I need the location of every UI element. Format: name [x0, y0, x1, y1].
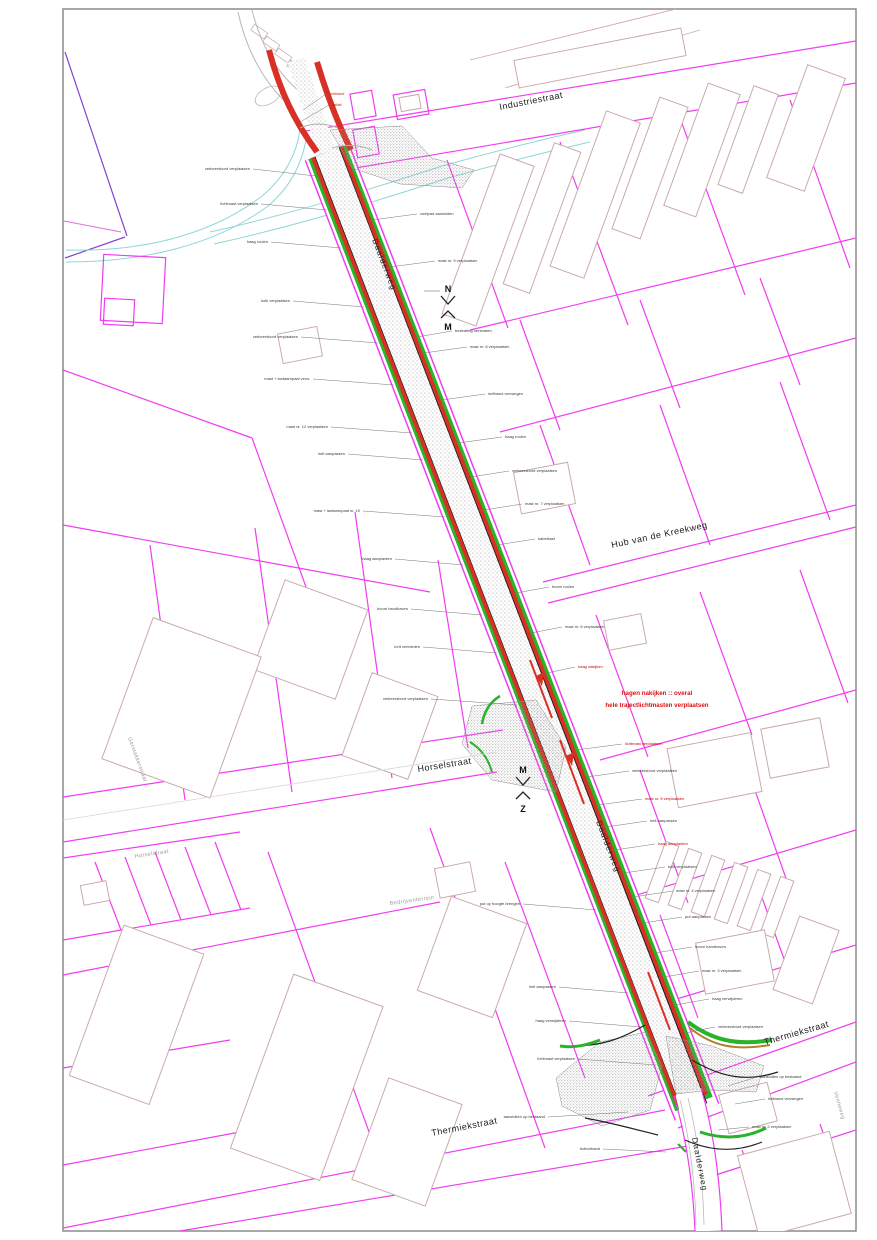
svg-text:trottoirband: trottoirband [580, 1146, 600, 1151]
revision-note-line2: hele trajectlichtmasten verplaatsen [605, 702, 708, 709]
svg-text:asfalt: asfalt [332, 102, 342, 107]
svg-text:verkeersbord verplaatsen: verkeersbord verplaatsen [512, 468, 557, 473]
svg-text:mast nr. 9 verplaatsen: mast nr. 9 verplaatsen [438, 258, 477, 263]
svg-text:inritband: inritband [329, 91, 344, 96]
svg-text:boom handhaven: boom handhaven [695, 944, 726, 949]
svg-text:mast nr. 2 verplaatsen: mast nr. 2 verplaatsen [752, 1124, 791, 1129]
svg-text:mast nr. 4 verplaatsen: mast nr. 4 verplaatsen [676, 888, 715, 893]
svg-text:mast nr. 6 verplaatsen: mast nr. 6 verplaatsen [565, 624, 604, 629]
svg-text:lichtmast verplaatsen: lichtmast verplaatsen [220, 201, 258, 206]
svg-text:mast nr. 3 verplaatsen: mast nr. 3 verplaatsen [702, 968, 741, 973]
svg-text:mast nr. 5 verplaatsen: mast nr. 5 verplaatsen [645, 796, 684, 801]
svg-text:inrit verbreden: inrit verbreden [394, 644, 420, 649]
marker-letter-z: Z [520, 804, 526, 814]
svg-text:lichtmast verplaatsen: lichtmast verplaatsen [625, 741, 663, 746]
svg-text:kabelkast: kabelkast [538, 536, 556, 541]
svg-text:haag rooien: haag rooien [505, 434, 526, 439]
svg-text:verkeersbord verplaatsen: verkeersbord verplaatsen [718, 1024, 763, 1029]
svg-text:boom rooien: boom rooien [552, 584, 574, 589]
marker-letter-n: N [445, 284, 452, 294]
svg-text:inrit aanpassen: inrit aanpassen [318, 451, 345, 456]
marker-letter-m2: M [519, 765, 527, 775]
svg-text:inrit aanpassen: inrit aanpassen [650, 818, 677, 823]
svg-text:inritband vervangen: inritband vervangen [488, 391, 523, 396]
svg-text:mast + lantaarnpaal nr. 10: mast + lantaarnpaal nr. 10 [314, 508, 361, 513]
svg-text:mast + lantaarnpaal verw.: mast + lantaarnpaal verw. [264, 376, 310, 381]
svg-text:lichtmast verplaatsen: lichtmast verplaatsen [537, 1056, 575, 1061]
svg-text:bestrating herstraten: bestrating herstraten [455, 328, 492, 333]
svg-text:verkeersbord verplaatsen: verkeersbord verplaatsen [205, 166, 250, 171]
svg-text:verkeersbord verplaatsen: verkeersbord verplaatsen [253, 334, 298, 339]
svg-text:verkeersbord verplaatsen: verkeersbord verplaatsen [383, 696, 428, 701]
svg-text:haag verwijderen: haag verwijderen [712, 996, 742, 1001]
svg-text:inrit aanpassen: inrit aanpassen [529, 984, 556, 989]
svg-text:verkeersbord verplaatsen: verkeersbord verplaatsen [632, 768, 677, 773]
svg-text:haag aanplanten: haag aanplanten [362, 556, 392, 561]
svg-text:aansluiten op bestaand: aansluiten op bestaand [504, 1114, 545, 1119]
marker-letter-m1: M [444, 322, 452, 332]
svg-text:boom handhaven: boom handhaven [377, 606, 408, 611]
svg-text:mast nr. 7 verplaatsen: mast nr. 7 verplaatsen [525, 501, 564, 506]
site-plan-canvas: verkeersbord verplaatsenlichtmast verpla… [0, 0, 877, 1240]
svg-text:inritband vervangen: inritband vervangen [768, 1096, 803, 1101]
svg-text:kolk verplaatsen: kolk verplaatsen [668, 864, 697, 869]
site-plan-page: verkeersbord verplaatsenlichtmast verpla… [0, 0, 877, 1240]
svg-text:aansluiten op bestaand: aansluiten op bestaand [760, 1074, 801, 1079]
svg-text:put aanpassen: put aanpassen [685, 914, 711, 919]
svg-text:haag nakijken: haag nakijken [578, 664, 603, 669]
svg-text:voetpad aansluiten: voetpad aansluiten [420, 211, 454, 216]
svg-text:haag rooien: haag rooien [247, 239, 268, 244]
svg-text:kolk verplaatsen: kolk verplaatsen [261, 298, 290, 303]
svg-text:mast nr. 8 verplaatsen: mast nr. 8 verplaatsen [470, 344, 509, 349]
svg-text:mast nr. 12 verplaatsen: mast nr. 12 verplaatsen [286, 424, 328, 429]
svg-text:put op hoogte brengen: put op hoogte brengen [480, 901, 520, 906]
svg-text:haag verwijderen: haag verwijderen [536, 1018, 566, 1023]
revision-note-line1: hagen nakijken :: overal [622, 690, 693, 697]
svg-text:haag aanplanten: haag aanplanten [658, 841, 688, 846]
